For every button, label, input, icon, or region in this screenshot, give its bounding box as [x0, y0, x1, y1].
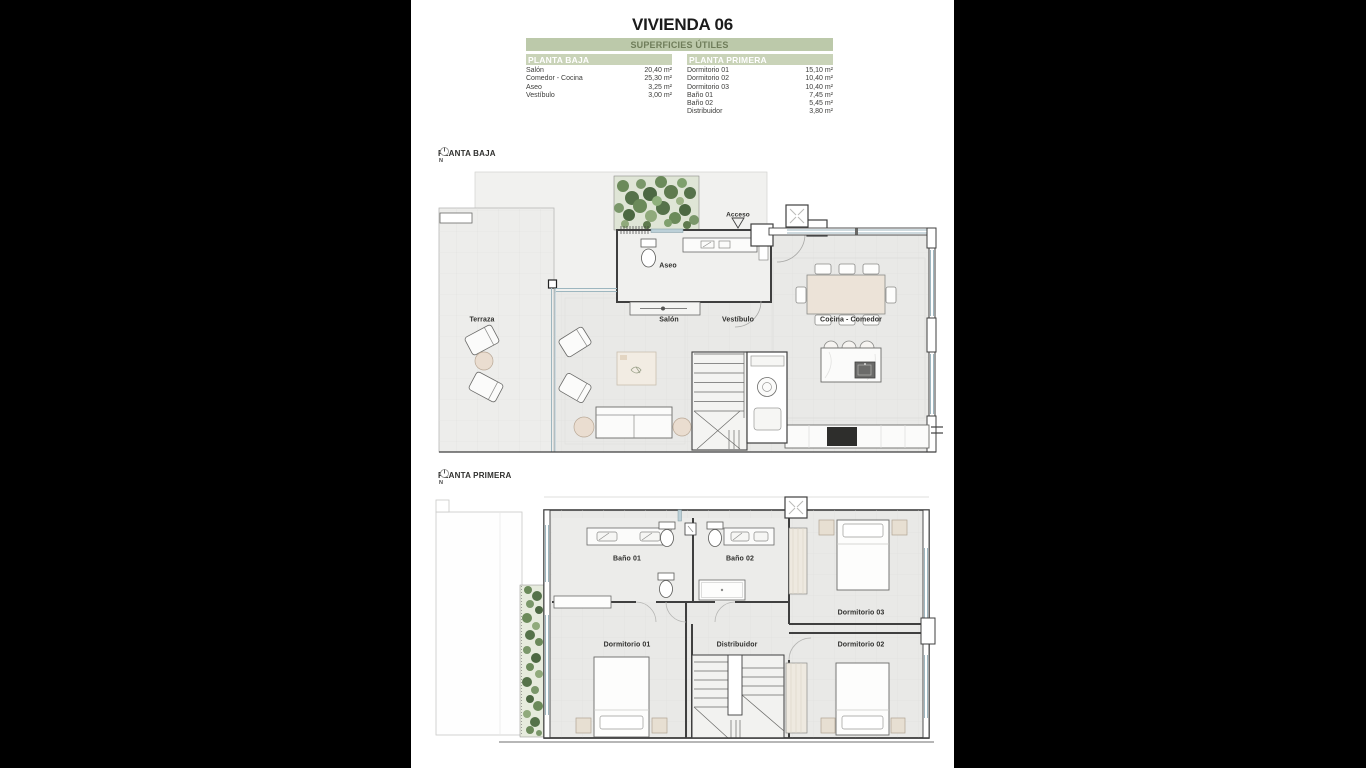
area-row: Dormitorio 0210,40 m² [687, 75, 833, 83]
page-title: VIVIENDA 06 [411, 15, 954, 35]
svg-text:N: N [439, 480, 443, 485]
room-label-terraza: Terraza [469, 317, 494, 324]
room-label-dormitorio01: Dormitorio 01 [604, 642, 651, 649]
room-label-bano02: Baño 02 [726, 556, 754, 563]
area-row: Comedor - Cocina25,30 m² [526, 75, 672, 83]
plan-sheet: VIVIENDA 06 SUPERFICIES ÚTILES PLANTA BA… [411, 0, 954, 768]
area-row: Baño 025,45 m² [687, 100, 833, 108]
room-label-salon: Salón [659, 317, 679, 324]
room-label-cocina-comedor: Cocina - Comedor [820, 317, 882, 324]
canvas: VIVIENDA 06 SUPERFICIES ÚTILES PLANTA BA… [0, 0, 1366, 768]
area-row: Distribuidor3,80 m² [687, 108, 833, 116]
planta-baja-drawing [435, 168, 955, 460]
area-row: Salón20,40 m² [526, 67, 672, 75]
area-row: Dormitorio 0115,10 m² [687, 67, 833, 75]
room-label-acceso: Acceso [726, 212, 750, 219]
column-header: PLANTA BAJA [526, 54, 672, 65]
area-row: Baño 017,45 m² [687, 92, 833, 100]
room-label-dormitorio02: Dormitorio 02 [838, 642, 885, 649]
north-compass-icon: N [438, 468, 450, 485]
room-label-dormitorio03: Dormitorio 03 [838, 610, 885, 617]
room-label-distribuidor: Distribuidor [717, 642, 758, 649]
room-label-bano01: Baño 01 [613, 556, 641, 563]
surfaces-table-header: SUPERFICIES ÚTILES [526, 38, 833, 51]
area-row: Vestíbulo3,00 m² [526, 92, 672, 100]
north-compass-icon: N [438, 146, 450, 163]
area-row: Aseo3,25 m² [526, 84, 672, 92]
column-planta-baja: PLANTA BAJA Salón20,40 m² Comedor - Coci… [526, 54, 672, 117]
room-label-vestibulo: Vestíbulo [722, 317, 754, 324]
column-header: PLANTA PRIMERA [687, 54, 833, 65]
surfaces-table: SUPERFICIES ÚTILES PLANTA BAJA Salón20,4… [526, 38, 833, 117]
planta-primera-heading: N PLANTA PRIMERA [438, 468, 511, 480]
room-label-aseo: Aseo [659, 263, 677, 270]
svg-text:N: N [439, 158, 443, 163]
column-planta-primera: PLANTA PRIMERA Dormitorio 0115,10 m² Dor… [687, 54, 833, 117]
planta-baja-heading: N PLANTA BAJA [438, 146, 496, 158]
planta-primera-drawing [435, 490, 955, 752]
area-row: Dormitorio 0310,40 m² [687, 84, 833, 92]
